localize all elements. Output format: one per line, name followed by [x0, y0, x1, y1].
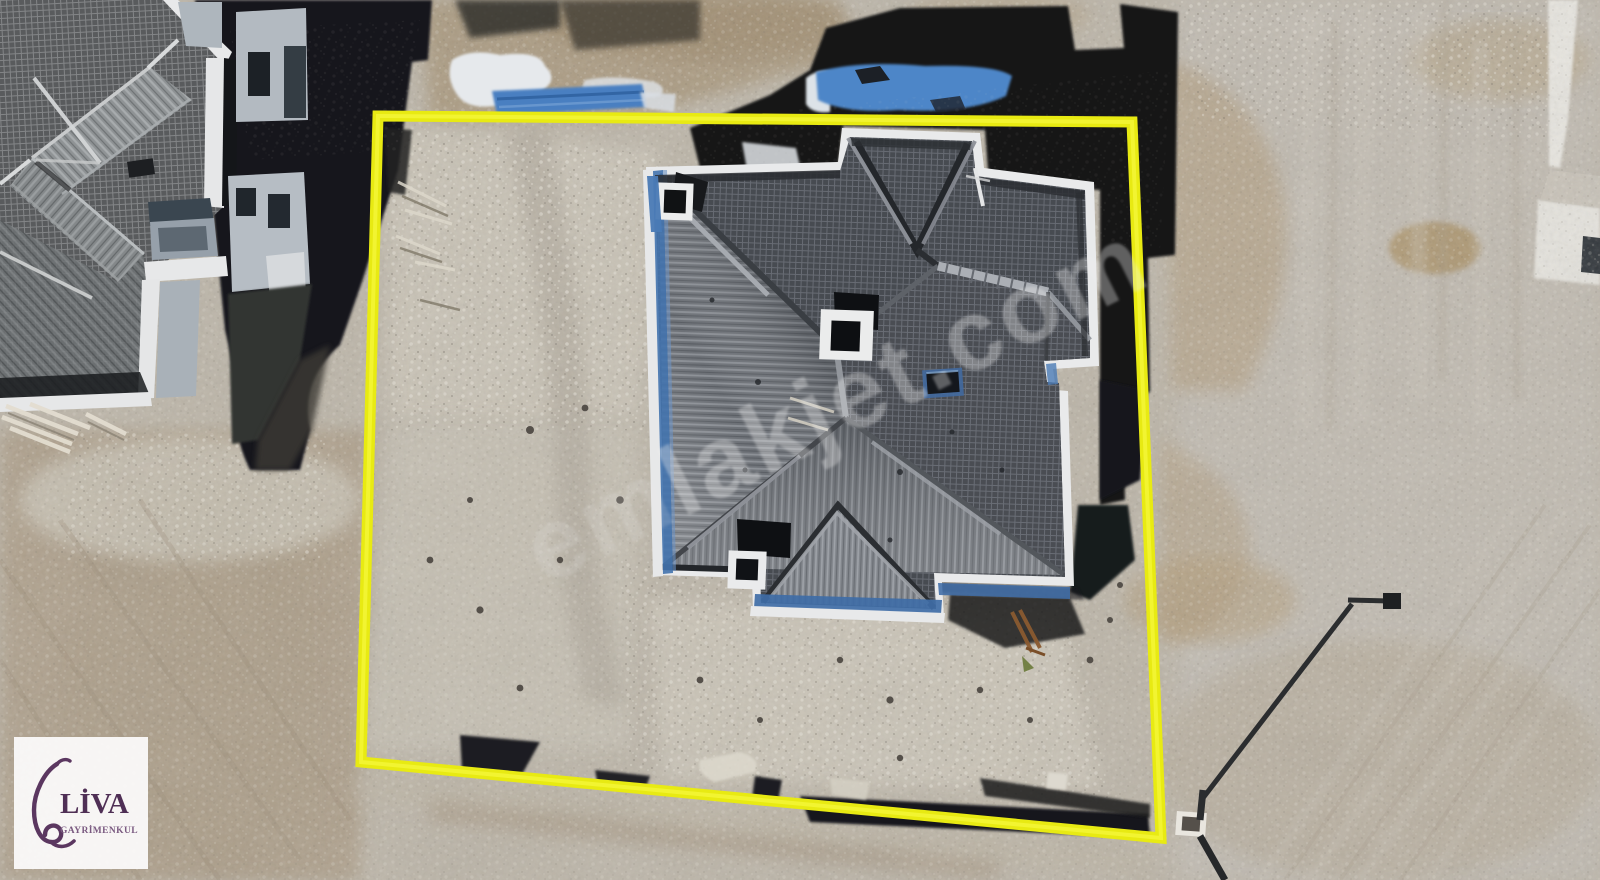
svg-text:LİVA: LİVA: [60, 787, 129, 820]
svg-text:GAYRİMENKUL: GAYRİMENKUL: [60, 824, 138, 836]
